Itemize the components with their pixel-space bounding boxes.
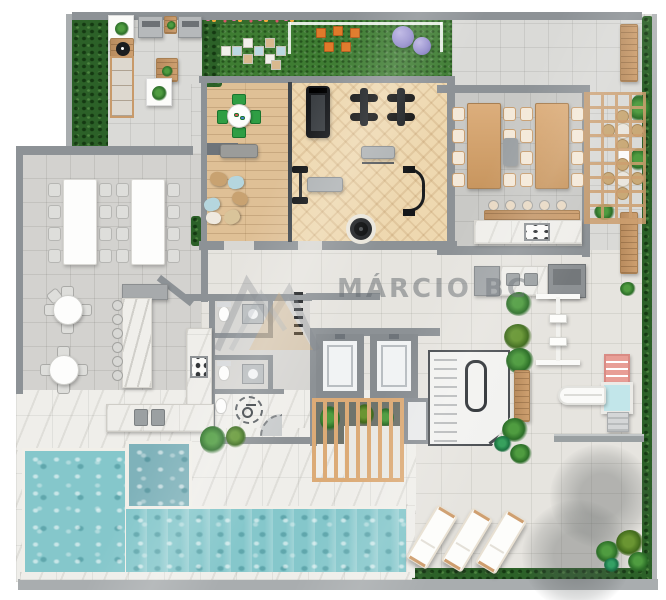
chair [167, 249, 180, 263]
bar-stool [112, 356, 123, 367]
wall [437, 246, 590, 255]
wood-bench [620, 24, 638, 82]
watermark-text: MÁRCIO BC [337, 274, 529, 304]
weight-plate-mat [346, 214, 376, 244]
grill-1 [138, 16, 163, 38]
party-table [63, 179, 97, 265]
bar-marble-top [122, 298, 152, 388]
charcoal-grill [110, 38, 134, 58]
machine-pad [403, 166, 415, 173]
planter-edge-v2 [440, 22, 443, 52]
stair-railing [465, 360, 487, 412]
wall [66, 14, 72, 150]
playing-card [234, 113, 239, 117]
hopscotch-cell [271, 60, 281, 70]
sink [151, 409, 165, 426]
corner-shower [260, 414, 282, 436]
card-table [227, 104, 251, 128]
hopscotch-cell [221, 46, 231, 56]
treadmill-console [309, 88, 327, 93]
chair [116, 227, 129, 241]
grill-2 [178, 16, 202, 38]
press-bench [307, 177, 343, 192]
chair [452, 173, 465, 187]
hopscotch-game [221, 38, 289, 72]
chair [99, 183, 112, 197]
bean-bag-area [204, 172, 258, 234]
exercise-bike [387, 86, 415, 128]
wheelchair-wheel-icon [242, 407, 253, 418]
weight-machine [403, 166, 431, 216]
chair [116, 183, 129, 197]
vanity-basin [248, 369, 258, 379]
palm-tree [510, 444, 532, 464]
round-table [49, 355, 79, 385]
toilet [218, 365, 230, 381]
chair [503, 173, 516, 187]
palm-tree [504, 324, 532, 350]
wall [16, 148, 23, 394]
glass-partition [288, 82, 292, 242]
elevator-door [335, 334, 345, 339]
party-table-set [116, 176, 180, 268]
playground-bench [514, 370, 530, 422]
barbell-plates [292, 197, 308, 204]
bean-bag [202, 196, 221, 213]
lounger-fold [456, 542, 471, 552]
elevator-2 [370, 334, 418, 398]
chair [503, 107, 516, 121]
wall [16, 146, 193, 155]
pergola-beam [312, 478, 404, 482]
slide-structure [556, 352, 636, 434]
bean-bag [227, 175, 245, 191]
bean-bag [205, 211, 222, 225]
treadmill-belt [311, 95, 325, 131]
round-table-set [44, 286, 92, 334]
chair [452, 151, 465, 165]
pergola-deck [312, 398, 404, 482]
chair [48, 249, 61, 263]
exercise-ball-1 [392, 26, 414, 48]
chair [99, 249, 112, 263]
chair [520, 129, 533, 143]
exercise-ball-2 [413, 37, 431, 55]
chair [571, 129, 584, 143]
planter-edge-h [290, 22, 442, 25]
pool-edge-right [406, 504, 415, 578]
chair [452, 107, 465, 121]
party-table-set [48, 176, 112, 268]
bean-bag [209, 170, 229, 187]
hopscotch-cell [243, 38, 253, 48]
hopscotch-cell [232, 46, 242, 56]
bike-frame [397, 88, 405, 126]
stepping-block [316, 28, 326, 38]
dining-set [520, 100, 584, 192]
party-table [131, 179, 165, 265]
gym-bench [358, 144, 398, 168]
bar-stool [112, 370, 123, 381]
bike-frame [360, 88, 368, 126]
door-opening [224, 241, 254, 250]
chair [116, 205, 129, 219]
pillar [503, 138, 518, 166]
elevator-door [389, 334, 399, 339]
pool-lap-section [126, 506, 408, 578]
bean-bag [230, 189, 250, 207]
spa-pool [126, 441, 192, 511]
chair [571, 107, 584, 121]
pergola-slats [312, 398, 404, 482]
shrub [620, 282, 636, 296]
chair [571, 151, 584, 165]
grill-slot [142, 21, 160, 27]
plate-hub [359, 227, 363, 231]
sofa [220, 144, 258, 158]
chair [48, 205, 61, 219]
toilet [215, 398, 227, 414]
card-table-set [217, 94, 261, 138]
plant-pot [162, 66, 173, 77]
chair [250, 110, 261, 124]
bench-leg [362, 162, 394, 164]
hopscotch-cell [254, 46, 264, 56]
shrub [494, 436, 512, 452]
chair [571, 173, 584, 187]
deck-shrub [226, 426, 246, 448]
hedge-wall-left [72, 14, 108, 150]
door-opening [298, 241, 322, 250]
round-table-set [40, 346, 88, 394]
chair [167, 205, 180, 219]
slide-chute-line [564, 394, 602, 396]
wall [199, 76, 455, 83]
wheelchair-seat-icon [246, 404, 256, 406]
bench-pad [361, 146, 395, 159]
hopscotch-cell [276, 46, 286, 56]
stove-top [553, 269, 581, 285]
chair [232, 127, 246, 138]
wall [437, 85, 587, 93]
bbq-cabinets [110, 56, 134, 118]
shrub [604, 558, 620, 572]
chair [99, 205, 112, 219]
deck-shrub [200, 426, 226, 454]
slide-steps [607, 412, 629, 432]
chair [167, 227, 180, 241]
garden-table-white [146, 78, 172, 106]
toilet-tank [217, 361, 231, 366]
pergola-beam [312, 398, 404, 402]
shrub [628, 552, 650, 572]
chair [452, 129, 465, 143]
restroom-2 [214, 360, 268, 390]
hopscotch-cell [243, 54, 253, 64]
low-wall [554, 434, 644, 442]
stair-steps [434, 356, 457, 442]
chair [48, 227, 61, 241]
machine-pad [403, 209, 415, 216]
chair [520, 173, 533, 187]
chair [116, 249, 129, 263]
lounger-fold [490, 544, 505, 554]
bean-bag [222, 207, 243, 227]
side-table [164, 16, 177, 34]
plant-pot [115, 22, 129, 36]
treadmill [306, 86, 330, 138]
hopscotch-cell [265, 38, 275, 48]
stepping-block [324, 42, 334, 52]
exercise-bike [350, 86, 378, 128]
pergola-trellis [584, 92, 646, 224]
pool-edge-bottom [20, 572, 412, 580]
lounger-fold [421, 539, 436, 549]
pool-main [22, 448, 128, 578]
staircase [428, 350, 510, 446]
grill-slot [182, 21, 199, 27]
stepping-blocks [316, 26, 364, 54]
chair [520, 151, 533, 165]
bar-stool [112, 342, 123, 353]
round-table [53, 295, 83, 325]
cooktop [524, 223, 550, 241]
plant-pot [167, 21, 176, 30]
watermark-logo [213, 264, 325, 356]
elevator-cab [381, 345, 407, 387]
wall [268, 355, 273, 394]
swing-seat [549, 314, 567, 323]
plant-pot [152, 86, 167, 101]
bar-counter [112, 284, 170, 390]
bar-stool [112, 328, 123, 339]
bench-press [291, 166, 345, 204]
playing-card [240, 116, 245, 120]
barbell-plates [292, 166, 308, 173]
kitchen-island [474, 200, 584, 246]
elevator-cab [327, 345, 353, 387]
stepping-block [341, 42, 351, 52]
stepping-block [333, 26, 343, 36]
chair [167, 183, 180, 197]
support-cooktop [190, 356, 208, 378]
service-room [404, 398, 430, 444]
bar-stool [112, 314, 123, 325]
logo-mountains-icon [213, 264, 325, 356]
grill-dot [121, 47, 124, 50]
dining-table [535, 103, 569, 189]
swing-seat [549, 337, 567, 346]
floor-plan: MÁRCIO BC [0, 0, 666, 600]
chair [48, 183, 61, 197]
bar-stool [112, 300, 123, 311]
machine-frame [405, 168, 425, 212]
chair [520, 107, 533, 121]
chair [99, 227, 112, 241]
dining-table [467, 103, 501, 189]
sink [134, 409, 148, 426]
stepping-block [350, 28, 360, 38]
